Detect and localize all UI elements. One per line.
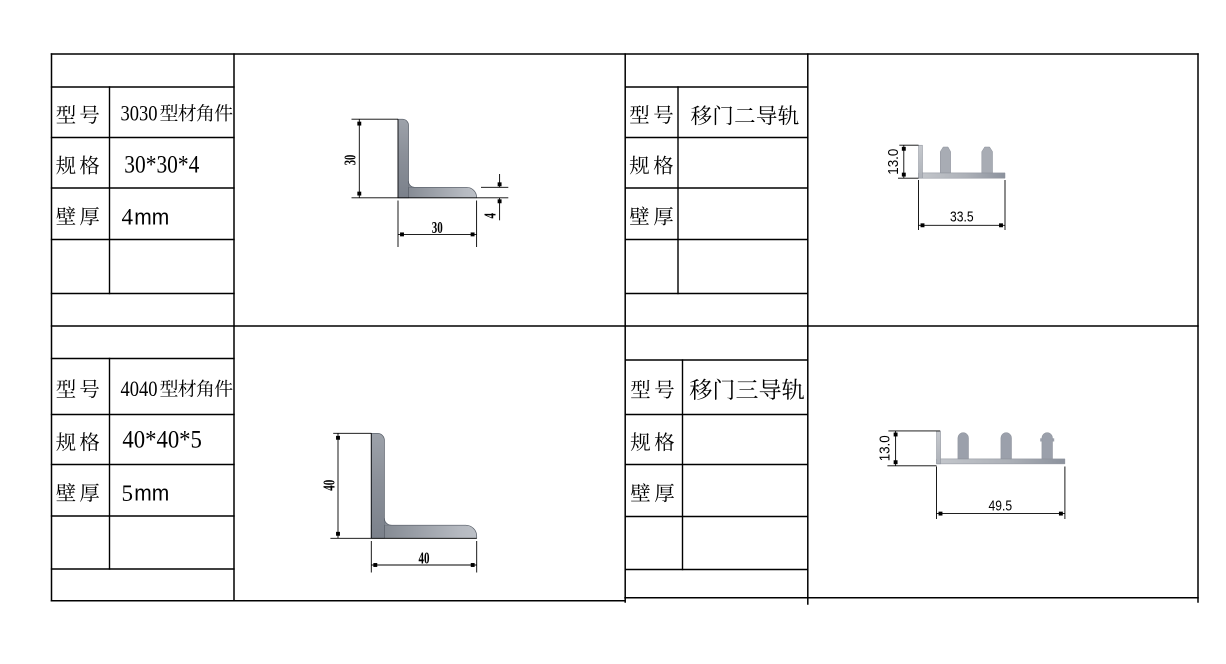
svg-text:4040: 4040 — [121, 376, 158, 401]
svg-text:mm: mm — [134, 481, 169, 506]
svg-text:33.5: 33.5 — [950, 209, 974, 226]
svg-text:40: 40 — [419, 548, 430, 567]
svg-text:4: 4 — [481, 213, 500, 219]
svg-text:13.0: 13.0 — [885, 149, 902, 175]
svg-text:mm: mm — [134, 204, 169, 229]
svg-text:40*40*5: 40*40*5 — [122, 426, 201, 453]
svg-text:4: 4 — [122, 205, 134, 230]
svg-text:3030: 3030 — [121, 101, 158, 126]
svg-text:49.5: 49.5 — [989, 498, 1013, 515]
svg-text:40: 40 — [320, 480, 339, 491]
svg-text:5: 5 — [122, 481, 134, 506]
svg-text:30: 30 — [341, 155, 360, 166]
svg-text:30*30*4: 30*30*4 — [124, 152, 199, 179]
svg-text:30: 30 — [432, 218, 443, 237]
svg-text:13.0: 13.0 — [877, 435, 894, 461]
